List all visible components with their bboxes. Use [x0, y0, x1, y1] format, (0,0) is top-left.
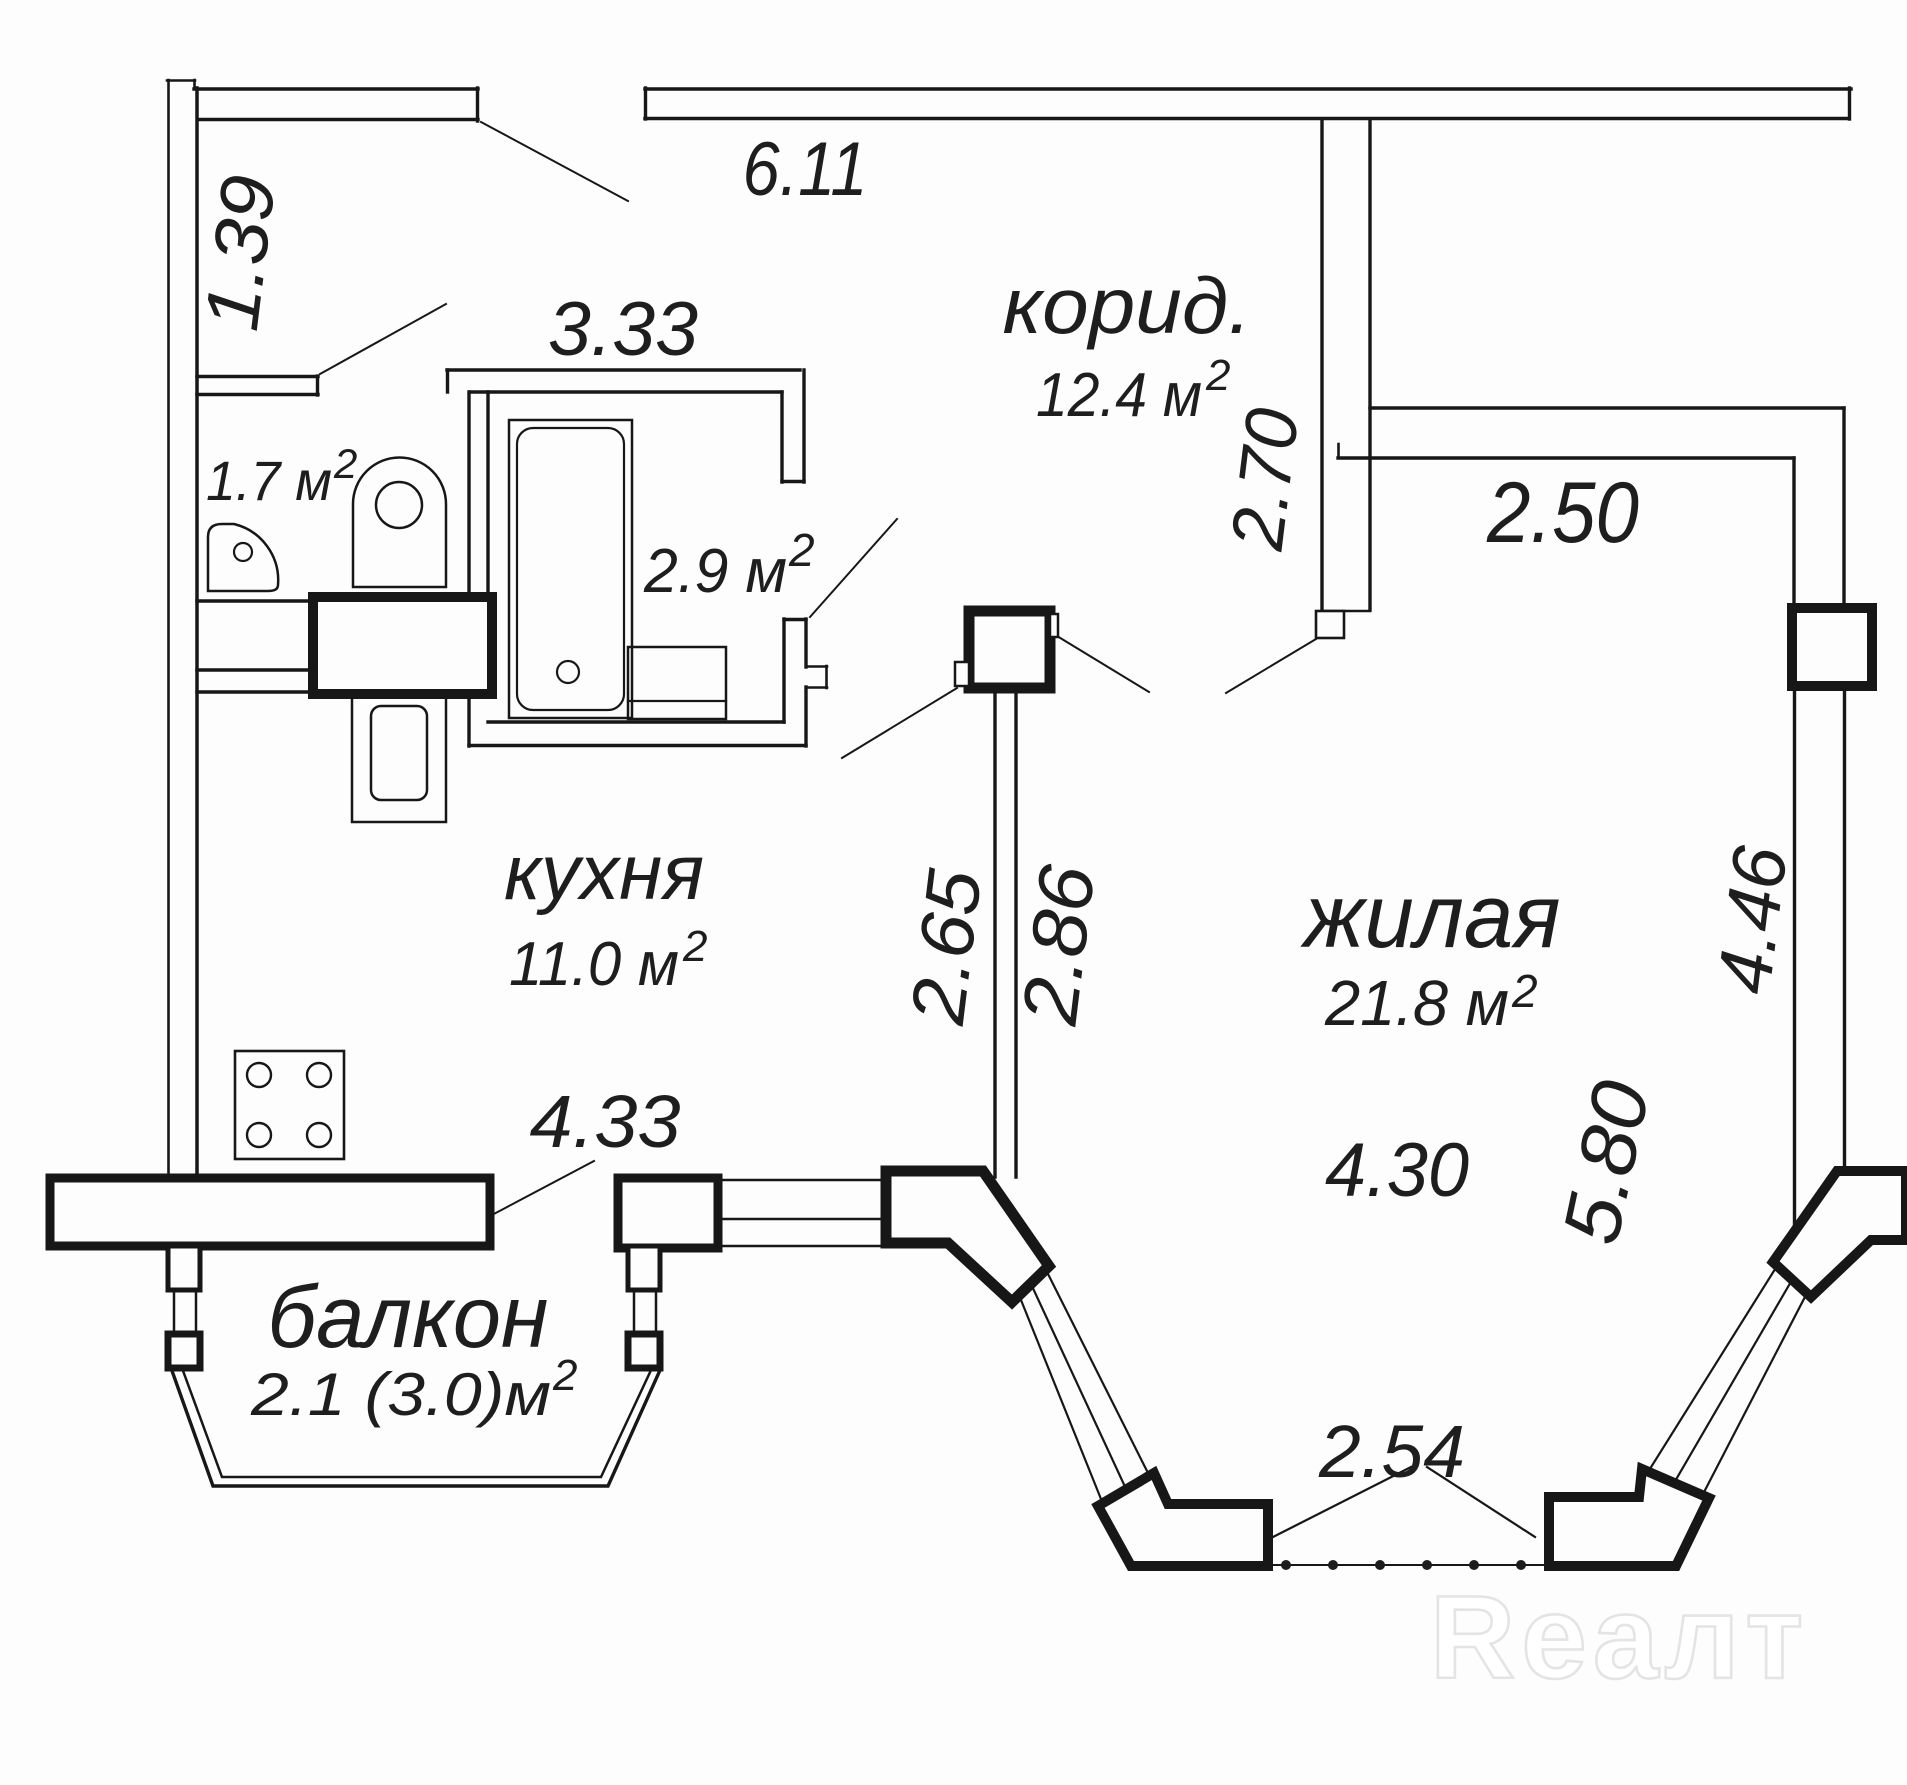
svg-text:Reaлт: Reaлт: [1430, 1572, 1809, 1704]
svg-text:2.54: 2.54: [1318, 1410, 1465, 1493]
svg-text:2: 2: [333, 440, 357, 487]
svg-text:6.11: 6.11: [743, 127, 868, 212]
svg-text:корид.: корид.: [1003, 261, 1252, 350]
svg-text:1.7 м: 1.7 м: [206, 449, 332, 512]
svg-text:2: 2: [788, 524, 815, 576]
svg-text:кухня: кухня: [504, 828, 704, 916]
svg-text:2.70: 2.70: [1215, 404, 1315, 555]
svg-text:балкон: балкон: [268, 1267, 549, 1366]
svg-text:жилая: жилая: [1300, 867, 1561, 967]
svg-text:4.33: 4.33: [530, 1080, 681, 1163]
svg-text:4.30: 4.30: [1325, 1128, 1469, 1213]
svg-text:2.1 (3.0)м: 2.1 (3.0)м: [250, 1361, 551, 1428]
svg-text:2: 2: [1511, 965, 1538, 1017]
svg-text:2: 2: [1205, 351, 1230, 400]
svg-text:2.9 м: 2.9 м: [643, 537, 787, 606]
svg-text:12.4 м: 12.4 м: [1036, 361, 1202, 430]
svg-text:11.0 м: 11.0 м: [509, 930, 679, 999]
svg-text:3.33: 3.33: [548, 287, 698, 372]
svg-text:2: 2: [552, 1351, 577, 1400]
svg-text:4.46: 4.46: [1702, 841, 1804, 998]
svg-text:2.50: 2.50: [1486, 465, 1639, 561]
svg-text:2: 2: [682, 922, 707, 971]
svg-text:21.8 м: 21.8 м: [1324, 967, 1509, 1039]
